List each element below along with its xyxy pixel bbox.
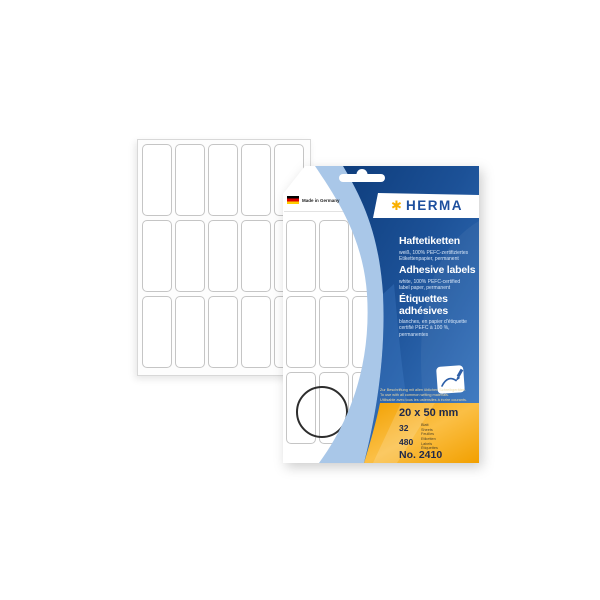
usage-note: Zur Beschriftung mit allen üblichen Schr… [380,388,477,403]
hang-hole [339,169,385,182]
label-cell [286,296,316,368]
label-cell [319,296,349,368]
title-de-heading: Haftetiketten [399,236,479,248]
germany-flag-icon [287,196,299,204]
herma-star-icon: ✱ [391,199,402,212]
label-cell [208,296,238,368]
product-photo: Made in Germany ✱ HERMA Haftetiketten we… [0,0,600,600]
label-cell [352,296,382,368]
label-size: 20 x 50 mm [399,407,458,419]
label-cell [142,296,172,368]
label-cell [175,296,205,368]
title-fr-sub3: permanentes [399,332,479,338]
usage-note-fr: Utilisable avec tous les ustensiles à éc… [380,398,477,403]
label-cell [241,144,271,216]
label-cell [286,220,316,292]
sheet-count: 32 [399,423,421,433]
label-cell [142,144,172,216]
label-cell [175,220,205,292]
label-cell [352,372,382,444]
made-in-germany: Made in Germany [287,196,340,204]
title-en-sub2: label paper, permanent [399,285,479,291]
package-card: Made in Germany ✱ HERMA Haftetiketten we… [283,166,479,463]
label-cell [241,296,271,368]
sheet-count-units: Blatt Sheets Feuilles [421,423,434,437]
title-de-sub2: Etikettenpapier, permanent [399,256,479,262]
package-window-sheet [284,211,388,455]
product-title-de: Haftetiketten weiß, 100% PEFC-zertifizie… [399,236,479,262]
label-circle-mark [296,386,348,438]
label-cell [208,220,238,292]
title-fr-heading1: Étiquettes [399,294,479,306]
product-title-en: Adhesive labels white, 100% PEFC-certifi… [399,265,479,291]
label-cell [352,220,382,292]
label-cell [175,144,205,216]
brand-logo: ✱ HERMA [377,195,477,216]
title-de-sub1: weiß, 100% PEFC-zertifiziertes [399,250,479,256]
product-title-fr: Étiquettes adhésives blanches, en papier… [399,294,479,338]
brand-name: HERMA [406,198,463,213]
item-number: No. 2410 [399,449,442,461]
label-cell [319,220,349,292]
label-count: 480 [399,437,421,447]
made-in-germany-label: Made in Germany [302,198,340,203]
label-cell [241,220,271,292]
label-cell [142,220,172,292]
title-fr-heading2: adhésives [399,306,479,318]
product-package: Made in Germany ✱ HERMA Haftetiketten we… [283,166,479,463]
sheet-count-row: 32 Blatt Sheets Feuilles [399,423,434,437]
title-en-heading: Adhesive labels [399,265,479,277]
label-cell [208,144,238,216]
label-unit-de: Etiketten [421,437,438,442]
